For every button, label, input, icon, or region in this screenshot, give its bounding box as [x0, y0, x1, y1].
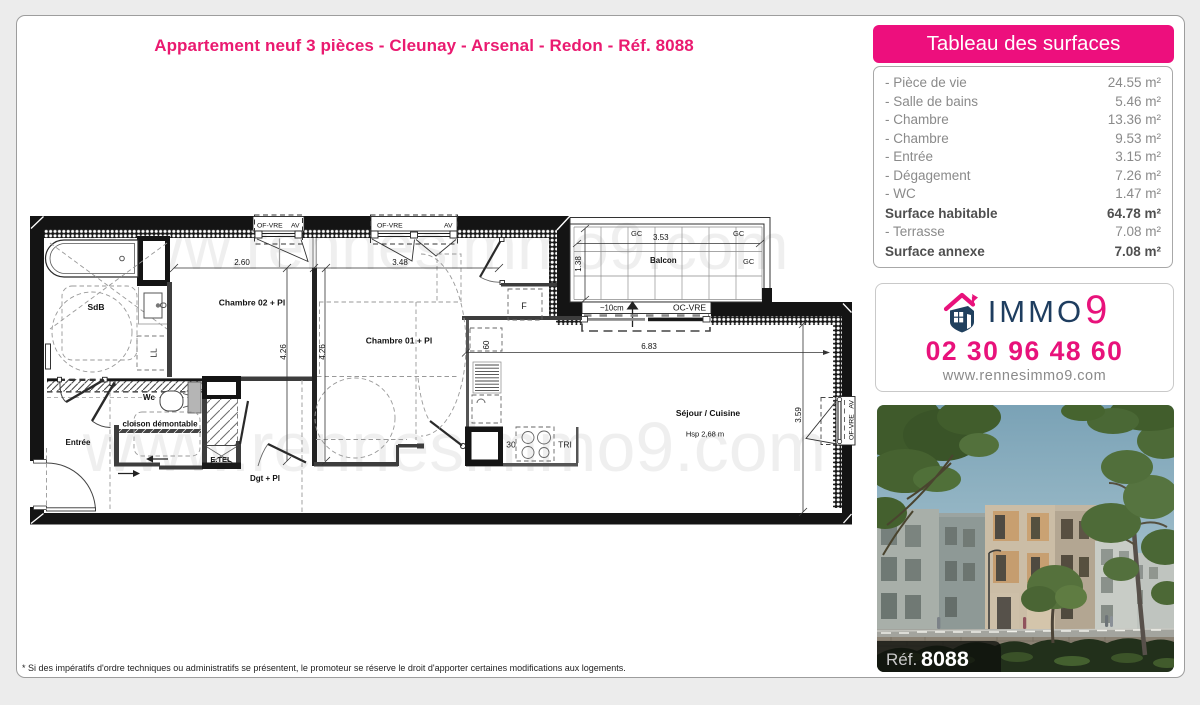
- svg-text:Wc: Wc: [143, 393, 156, 402]
- svg-text:Chambre 01 + Pl: Chambre 01 + Pl: [366, 336, 432, 346]
- svg-text:Balcon: Balcon: [650, 256, 677, 265]
- svg-text:F: F: [521, 301, 527, 311]
- svg-text:3.53: 3.53: [653, 233, 669, 242]
- svg-text:TRI: TRI: [558, 440, 572, 450]
- svg-text:4.26: 4.26: [318, 344, 327, 360]
- svg-text:Séjour / Cuisine: Séjour / Cuisine: [676, 408, 741, 418]
- svg-text:8088: 8088: [921, 647, 969, 671]
- svg-text:4.26: 4.26: [279, 344, 288, 360]
- svg-text:2.60: 2.60: [234, 258, 250, 267]
- svg-text:OF-VRE AV: OF-VRE AV: [849, 400, 856, 440]
- svg-text:LL: LL: [149, 348, 159, 358]
- svg-text:AV: AV: [444, 223, 453, 230]
- svg-text:3.59: 3.59: [794, 407, 803, 423]
- svg-text:1.38: 1.38: [574, 256, 583, 272]
- svg-text:Hsp 2,68 m: Hsp 2,68 m: [686, 430, 724, 439]
- svg-text:Dgt + Pl: Dgt + Pl: [250, 474, 280, 483]
- svg-text:6.83: 6.83: [641, 342, 657, 351]
- svg-text:GC: GC: [631, 229, 643, 238]
- svg-text:30: 30: [506, 440, 516, 450]
- svg-text:OF-VRE: OF-VRE: [257, 223, 283, 230]
- svg-text:~10cm: ~10cm: [600, 304, 624, 313]
- svg-text:Réf.: Réf.: [886, 650, 917, 669]
- svg-text:OC-VRE: OC-VRE: [673, 303, 706, 313]
- svg-text:60: 60: [482, 340, 491, 349]
- svg-text:Entrée: Entrée: [66, 438, 91, 447]
- svg-text:GC: GC: [743, 257, 755, 266]
- svg-text:Chambre 02 + Pl: Chambre 02 + Pl: [219, 298, 285, 308]
- svg-text:3.48: 3.48: [392, 258, 408, 267]
- svg-text:OF-VRE: OF-VRE: [377, 223, 403, 230]
- svg-text:GC: GC: [733, 229, 745, 238]
- svg-text:SdB: SdB: [88, 302, 105, 312]
- svg-text:AV: AV: [291, 223, 300, 230]
